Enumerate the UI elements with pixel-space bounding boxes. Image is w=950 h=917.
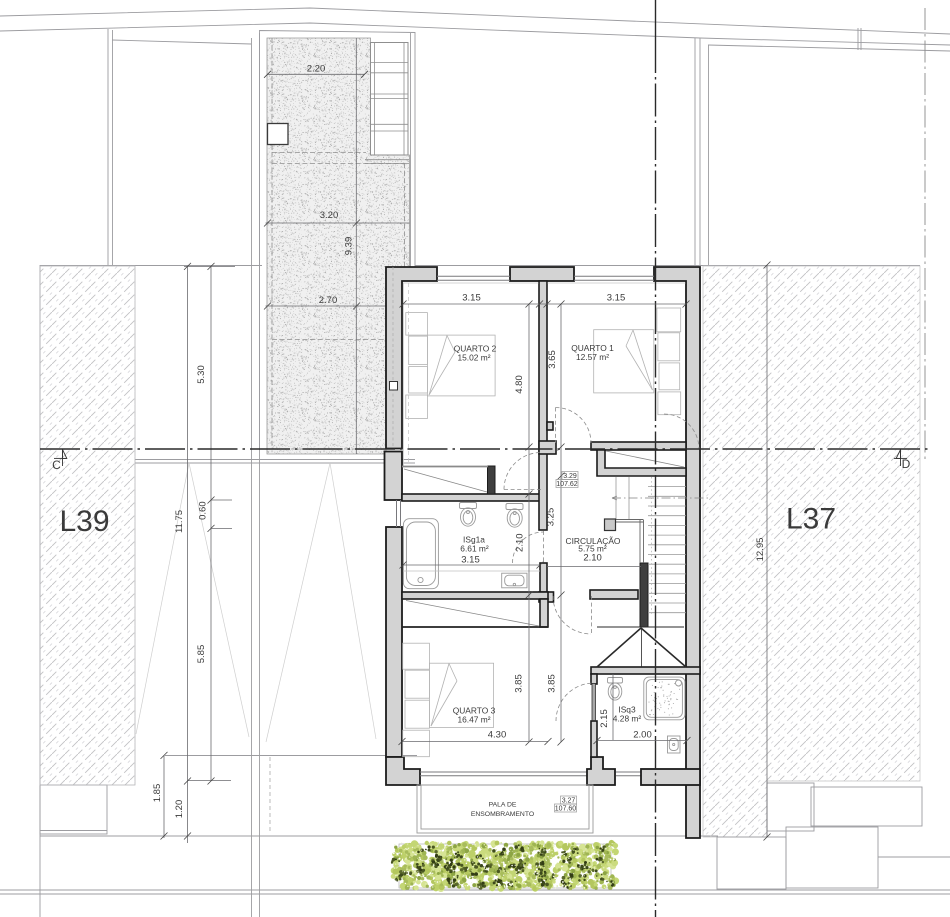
svg-text:2.00: 2.00: [633, 730, 652, 741]
svg-text:12.95: 12.95: [755, 538, 766, 562]
svg-text:D: D: [902, 457, 911, 471]
svg-text:0.60: 0.60: [198, 501, 209, 520]
svg-text:5.75 m²: 5.75 m²: [578, 544, 607, 554]
svg-text:2.20: 2.20: [307, 64, 326, 75]
svg-text:1.20: 1.20: [174, 800, 185, 819]
svg-text:6.61 m²: 6.61 m²: [460, 544, 489, 554]
svg-text:4.28 m²: 4.28 m²: [613, 714, 642, 724]
svg-text:15.02 m²: 15.02 m²: [457, 353, 490, 363]
svg-text:3.25: 3.25: [546, 508, 557, 527]
svg-text:16.47 m²: 16.47 m²: [457, 715, 490, 725]
svg-text:3.85: 3.85: [547, 674, 558, 693]
svg-text:2.15: 2.15: [599, 709, 610, 728]
svg-text:2.70: 2.70: [319, 295, 338, 306]
svg-text:3.27: 3.27: [562, 798, 576, 805]
svg-text:107.62: 107.62: [556, 481, 578, 488]
svg-text:12.57 m²: 12.57 m²: [576, 352, 609, 362]
svg-text:L37: L37: [786, 503, 836, 536]
svg-text:5.85: 5.85: [196, 645, 207, 664]
svg-text:3.29: 3.29: [563, 473, 577, 480]
svg-text:5.30: 5.30: [196, 365, 207, 384]
svg-text:2.10: 2.10: [515, 533, 526, 552]
svg-text:ENSOMBRAMENTO: ENSOMBRAMENTO: [471, 811, 534, 818]
svg-text:1.85: 1.85: [152, 784, 163, 803]
svg-text:L39: L39: [59, 505, 109, 538]
svg-text:107.60: 107.60: [555, 806, 577, 813]
svg-text:11.75: 11.75: [174, 510, 185, 533]
svg-text:C: C: [52, 458, 61, 472]
svg-text:3.65: 3.65: [547, 350, 558, 369]
svg-text:4.80: 4.80: [514, 375, 525, 394]
svg-text:2.10: 2.10: [583, 553, 602, 564]
svg-text:3.15: 3.15: [461, 555, 480, 566]
svg-text:3.15: 3.15: [607, 293, 626, 304]
svg-text:4.30: 4.30: [488, 730, 507, 741]
svg-text:PALA DE: PALA DE: [489, 802, 517, 809]
svg-text:9.39: 9.39: [344, 237, 355, 256]
svg-text:3.20: 3.20: [320, 210, 339, 221]
svg-text:3.15: 3.15: [462, 293, 481, 304]
svg-text:3.85: 3.85: [514, 674, 525, 693]
